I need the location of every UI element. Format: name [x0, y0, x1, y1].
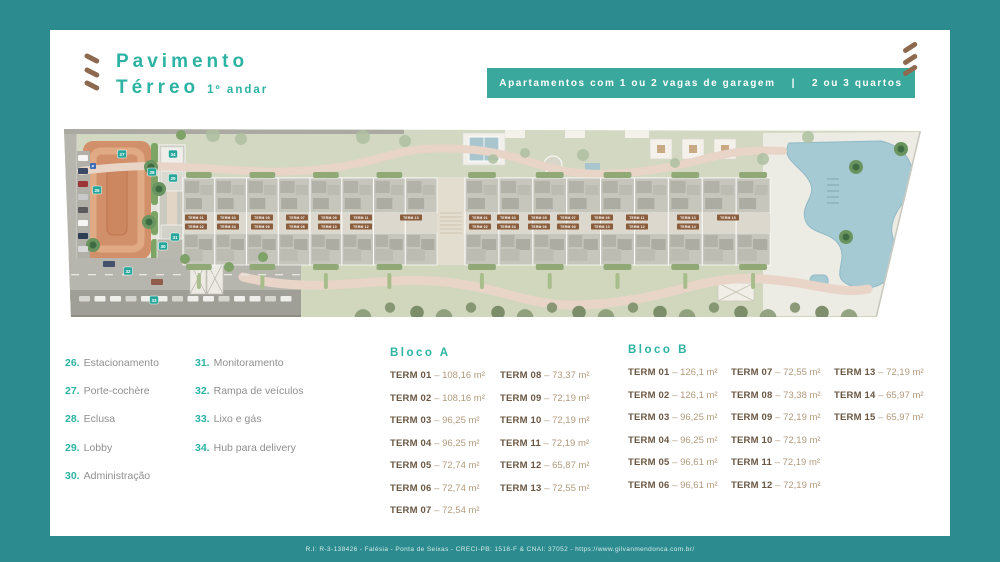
plan-unit-label-text: TERM 09: [594, 216, 610, 220]
features-banner: Apartamentos com 1 ou 2 vagas de garagem…: [487, 68, 915, 98]
legend-item: 30.Administração: [65, 469, 190, 484]
parking-sign-letter: P: [92, 164, 95, 169]
hedge-top: [250, 172, 276, 178]
unit-term: TERM 02: [390, 393, 432, 404]
unit-area: – 72,19 m²: [773, 480, 821, 491]
bloco-column: TERM 01 – 108,16 m²TERM 02 – 108,16 m²TE…: [390, 370, 500, 528]
bloco-b-columns: TERM 01 – 126,1 m²TERM 02 – 126,1 m²TERM…: [628, 367, 937, 502]
unit-area-row: TERM 01 – 126,1 m²: [628, 367, 731, 378]
tree: [709, 302, 719, 312]
unit-detail: [569, 235, 583, 247]
unit-detail: [671, 198, 688, 209]
car-on-road: [151, 279, 163, 285]
tree: [547, 302, 557, 312]
footer-bar: R.I: R-3-138426 - Falésia - Ponta de Sei…: [0, 536, 1000, 562]
car-on-road: [103, 261, 115, 267]
unit-term: TERM 14: [834, 390, 876, 401]
unit-area-row: TERM 12 – 72,19 m²: [731, 480, 834, 491]
hedge-yard: [683, 273, 687, 289]
palm-tree: [843, 234, 850, 241]
unit-detail: [376, 235, 389, 247]
unit-detail: [636, 235, 650, 247]
unit-detail: [501, 249, 520, 261]
legend-item: 33.Lixo e gás: [195, 412, 320, 427]
hedge-top: [186, 172, 212, 178]
legend-item: 27.Porte-cochère: [65, 384, 190, 399]
unit-detail: [344, 235, 357, 247]
lane-dash: [275, 274, 283, 275]
parked-car: [78, 155, 88, 161]
parked-car: [78, 233, 88, 239]
bloco-a-list: Bloco A TERM 01 – 108,16 m²TERM 02 – 108…: [390, 347, 610, 528]
tree: [670, 158, 680, 168]
unit-term: TERM 10: [731, 435, 773, 446]
legend-number: 28.: [65, 413, 80, 425]
palm-tree: [156, 186, 163, 193]
unit-term: TERM 13: [834, 367, 876, 378]
parked-car: [78, 207, 88, 213]
unit-area-row: TERM 03 – 96,25 m²: [628, 412, 731, 423]
plan-unit-label-text: TERM 01: [188, 216, 204, 220]
brand-dashes-left: [84, 56, 100, 97]
hedge-bottom: [186, 264, 212, 270]
unit-area-row: TERM 04 – 96,25 m²: [628, 435, 731, 446]
unit-detail: [551, 185, 564, 195]
plan-unit-label-text: TERM 07: [560, 216, 576, 220]
banner-divider: |: [792, 78, 796, 89]
plan-unit-label-text: TERM 12: [629, 225, 645, 229]
unit-detail: [468, 198, 485, 209]
unit-detail: [518, 185, 531, 195]
unit-detail: [738, 181, 753, 193]
unit-term: TERM 08: [500, 370, 542, 381]
legend-number: 27.: [65, 385, 80, 397]
legend-item: 29.Lobby: [65, 441, 190, 456]
unit-detail: [584, 239, 598, 250]
footer-credits: R.I: R-3-138426 - Falésia - Ponta de Sei…: [305, 546, 694, 553]
unit-term: TERM 04: [628, 435, 670, 446]
unit-term: TERM 13: [500, 483, 542, 494]
unit-area-row: TERM 08 – 73,38 m²: [731, 390, 834, 401]
unit-area-row: TERM 02 – 108,16 m²: [390, 393, 500, 404]
unit-detail: [264, 185, 276, 195]
unit-detail: [550, 239, 564, 250]
tree: [235, 133, 247, 145]
unit-term: TERM 11: [500, 438, 541, 449]
legend-label: Eclusa: [84, 413, 116, 425]
palm-tree: [898, 146, 905, 153]
unit-area: – 96,61 m²: [670, 480, 718, 491]
plan-unit-label-text: TERM 02: [472, 225, 488, 229]
legend-number: 30.: [65, 470, 80, 482]
unit-term: TERM 03: [390, 415, 432, 426]
hedge-yard: [197, 273, 201, 289]
page-title: Pavimento Térreo1º andar: [116, 51, 268, 100]
hedge-bottom: [468, 264, 496, 270]
unit-detail: [704, 181, 719, 193]
tree: [520, 148, 530, 158]
unit-detail: [249, 181, 263, 193]
unit-detail: [185, 181, 199, 193]
unit-detail: [377, 198, 393, 209]
lane-dash: [190, 274, 198, 275]
tree: [436, 309, 453, 326]
plan-badge-number: 31: [172, 235, 178, 240]
title-line2-text: Térreo: [116, 77, 199, 98]
unit-detail: [262, 239, 275, 250]
unit-detail: [232, 185, 244, 195]
unit-detail: [408, 198, 424, 209]
unit-detail: [407, 235, 420, 247]
tree: [598, 309, 615, 326]
unit-detail: [738, 249, 757, 261]
unit-detail: [651, 239, 665, 250]
plan-unit-label-text: TERM 14: [680, 225, 696, 229]
tree: [577, 149, 589, 161]
palm-tree: [90, 242, 97, 249]
unit-detail: [359, 185, 371, 195]
legend-number: 33.: [195, 413, 210, 425]
unit-area: – 72,19 m²: [773, 435, 821, 446]
unit-area: – 73,37 m²: [542, 370, 590, 381]
unit-area-row: TERM 13 – 72,19 m²: [834, 367, 937, 378]
plan-unit-label-text: TERM 11: [353, 216, 369, 220]
garage-car: [219, 296, 230, 302]
unit-term: TERM 08: [731, 390, 773, 401]
hedge-yard: [260, 273, 264, 289]
plan-unit-label-text: TERM 05: [531, 216, 547, 220]
unit-area-row: TERM 01 – 108,16 m²: [390, 370, 500, 381]
unit-area-row: TERM 09 – 72,19 m²: [731, 412, 834, 423]
legend-number: 26.: [65, 357, 80, 369]
unit-detail: [344, 249, 361, 261]
unit-area: – 96,25 m²: [670, 412, 718, 423]
plan-unit-label-text: TERM 10: [594, 225, 610, 229]
parked-car: [78, 246, 88, 252]
dash-icon: [902, 41, 918, 53]
tree: [790, 302, 800, 312]
parked-car: [78, 168, 88, 174]
unit-detail: [685, 239, 699, 250]
bloco-column: TERM 13 – 72,19 m²TERM 14 – 65,97 m²TERM…: [834, 367, 937, 502]
unit-term: TERM 06: [390, 483, 432, 494]
garage-car: [203, 296, 214, 302]
lane-dash: [139, 274, 147, 275]
unit-detail: [423, 185, 435, 195]
unit-detail: [482, 239, 496, 250]
garage-car: [79, 296, 90, 302]
unit-detail: [467, 181, 482, 193]
legend-item: 28.Eclusa: [65, 412, 190, 427]
unit-area-row: TERM 02 – 126,1 m²: [628, 390, 731, 401]
legend-number: 32.: [195, 385, 210, 397]
unit-detail: [516, 239, 530, 250]
unit-detail: [312, 235, 325, 247]
tree: [572, 306, 586, 320]
unit-detail: [636, 249, 655, 261]
unit-detail: [217, 235, 230, 247]
unit-detail: [327, 185, 339, 195]
unit-detail: [280, 181, 294, 193]
unit-detail: [704, 249, 723, 261]
unit-term: TERM 12: [731, 480, 773, 491]
unit-detail: [636, 181, 651, 193]
plan-unit-label-text: TERM 11: [629, 216, 645, 220]
unit-detail: [250, 198, 266, 209]
dash-icon: [84, 66, 100, 77]
unit-detail: [389, 239, 402, 250]
tree: [491, 306, 505, 320]
hedge-bottom: [250, 264, 276, 270]
plan-unit-label-text: TERM 04: [500, 225, 516, 229]
unit-area-row: TERM 11 – 72,19 m²: [731, 457, 834, 468]
unit-term: TERM 15: [834, 412, 876, 423]
unit-area: – 96,25 m²: [432, 415, 480, 426]
unit-area-row: TERM 12 – 65,87 m²: [500, 460, 610, 471]
plan-unit-label-text: TERM 01: [472, 216, 488, 220]
hedge-top: [313, 172, 339, 178]
site-wall: [65, 315, 301, 318]
unit-detail: [344, 181, 358, 193]
unit-detail: [637, 198, 654, 209]
legend-item: 26.Estacionamento: [65, 356, 190, 371]
unit-area: – 108,16 m²: [432, 370, 485, 381]
parked-car: [78, 220, 88, 226]
unit-detail: [618, 239, 632, 250]
unit-detail: [280, 235, 293, 247]
tree: [760, 309, 777, 326]
unit-detail: [467, 235, 481, 247]
garage-car: [126, 296, 137, 302]
unit-term: TERM 05: [390, 460, 432, 471]
unit-detail: [603, 235, 617, 247]
unit-term: TERM 03: [628, 412, 670, 423]
site-plan: TERM 01TERM 02TERM 03TERM 04TERM 05TERM …: [63, 127, 950, 333]
hedge-bottom: [377, 264, 403, 270]
court-island: [107, 165, 127, 235]
hedge-top: [377, 172, 403, 178]
unit-area-row: TERM 06 – 96,61 m²: [628, 480, 731, 491]
plan-unit-label-text: TERM 13: [403, 216, 419, 220]
parked-car: [78, 181, 88, 187]
garage-car: [250, 296, 261, 302]
plan-badge-number: 27: [119, 152, 125, 157]
garage-car: [281, 296, 292, 302]
plan-unit-label-text: TERM 10: [321, 225, 337, 229]
unit-area-row: TERM 05 – 72,74 m²: [390, 460, 500, 471]
parked-car: [78, 194, 88, 200]
plan-unit-label-text: TERM 03: [500, 216, 516, 220]
hedge-top: [536, 172, 564, 178]
unit-detail: [200, 185, 212, 195]
lane-dash: [156, 274, 164, 275]
unit-detail: [231, 239, 244, 250]
unit-detail: [467, 249, 486, 261]
tree: [488, 154, 498, 164]
plan-badge-number: 30: [160, 244, 166, 249]
unit-detail: [719, 239, 733, 250]
unit-term: TERM 07: [731, 367, 773, 378]
plan-badge-number: 33: [151, 298, 157, 303]
tree: [802, 131, 814, 143]
tree: [653, 306, 667, 320]
unit-detail: [407, 249, 424, 261]
unit-detail: [670, 235, 684, 247]
unit-detail: [670, 181, 685, 193]
unit-area-row: TERM 08 – 73,37 m²: [500, 370, 610, 381]
unit-area-row: TERM 04 – 96,25 m²: [390, 438, 500, 449]
plan-badge-number: 29: [170, 176, 176, 181]
tree: [628, 302, 638, 312]
hedge-yard: [616, 273, 620, 289]
unit-detail: [185, 235, 198, 247]
unit-area: – 72,74 m²: [432, 483, 480, 494]
unit-area-row: TERM 10 – 72,19 m²: [731, 435, 834, 446]
unit-term: TERM 06: [628, 480, 670, 491]
unit-area: – 126,1 m²: [670, 367, 718, 378]
sun-court: [718, 283, 754, 301]
unit-detail: [753, 239, 767, 250]
legend-label: Monitoramento: [214, 357, 284, 369]
unit-detail: [536, 198, 553, 209]
hedge-top: [604, 172, 632, 178]
unit-term: TERM 02: [628, 390, 670, 401]
title-line2: Térreo1º andar: [116, 77, 268, 100]
unit-detail: [186, 198, 202, 209]
legend-number: 29.: [65, 442, 80, 454]
tree: [734, 306, 748, 320]
unit-detail: [217, 249, 234, 261]
hedge-bottom: [739, 264, 767, 270]
hedge-yard: [480, 273, 484, 289]
lane-dash: [207, 274, 215, 275]
banner-left-text: Apartamentos com 1 ou 2 vagas de garagem: [499, 78, 775, 89]
lane-dash: [292, 274, 300, 275]
unit-detail: [217, 181, 231, 193]
plan-unit-label-text: TERM 12: [353, 225, 369, 229]
unit-detail: [721, 185, 734, 195]
hedge-top: [671, 172, 699, 178]
lane-dash: [88, 274, 96, 275]
unit-detail: [249, 235, 262, 247]
unit-term: TERM 07: [390, 505, 432, 516]
unit-area: – 126,1 m²: [670, 390, 718, 401]
dash-icon: [902, 64, 918, 76]
legend-label: Lixo e gás: [214, 413, 262, 425]
plan-unit-label-text: TERM 02: [188, 225, 204, 229]
tree: [841, 309, 858, 326]
unit-area: – 72,19 m²: [542, 415, 590, 426]
tree: [356, 130, 370, 144]
hedge-bottom: [313, 264, 339, 270]
unit-area: – 108,16 m²: [432, 393, 485, 404]
unit-area-row: TERM 06 – 72,74 m²: [390, 483, 500, 494]
unit-area: – 72,54 m²: [432, 505, 480, 516]
tree: [757, 153, 769, 165]
unit-detail: [704, 235, 718, 247]
unit-area-row: TERM 11 – 72,19 m²: [500, 438, 610, 449]
hedge-yard: [324, 273, 328, 289]
unit-area: – 96,61 m²: [670, 457, 718, 468]
unit-area: – 65,87 m²: [542, 460, 590, 471]
tree: [206, 128, 220, 142]
unit-detail: [604, 198, 621, 209]
bush: [176, 130, 186, 140]
tree: [385, 302, 395, 312]
unit-detail: [313, 198, 329, 209]
unit-area-row: TERM 05 – 96,61 m²: [628, 457, 731, 468]
unit-area: – 73,38 m²: [773, 390, 821, 401]
unit-detail: [280, 249, 297, 261]
unit-term: TERM 09: [500, 393, 542, 404]
bush: [224, 262, 234, 272]
dash-icon: [84, 80, 100, 91]
unit-area: – 72,19 m²: [773, 412, 821, 423]
unit-detail: [619, 185, 632, 195]
unit-area: – 72,74 m²: [432, 460, 480, 471]
lane-dash: [173, 274, 181, 275]
unit-detail: [312, 249, 329, 261]
unit-term: TERM 09: [731, 412, 773, 423]
plan-badge-number: 32: [125, 269, 131, 274]
unit-detail: [421, 239, 434, 250]
plan-unit-label-text: TERM 13: [680, 216, 696, 220]
unit-detail: [326, 239, 339, 250]
lane-dash: [241, 274, 249, 275]
title-line1: Pavimento: [116, 51, 268, 74]
legend-label: Rampa de veículos: [214, 385, 304, 397]
legend-number: 34.: [195, 442, 210, 454]
tree: [355, 309, 372, 326]
brand-dashes-right: [902, 45, 918, 80]
legend-item: 32.Rampa de veículos: [195, 384, 320, 399]
unit-detail: [755, 185, 768, 195]
tree: [410, 306, 424, 320]
legend-column-2: 31.Monitoramento32.Rampa de veículos33.L…: [195, 356, 320, 469]
unit-area: – 96,25 m²: [670, 435, 718, 446]
legend-column-1: 26.Estacionamento27.Porte-cochère28.Eclu…: [65, 356, 190, 497]
bloco-b-title: Bloco B: [628, 344, 937, 356]
unit-detail: [739, 198, 756, 209]
bloco-b-list: Bloco B TERM 01 – 126,1 m²TERM 02 – 126,…: [628, 344, 937, 502]
plan-badge-number: 26: [94, 188, 100, 193]
unit-detail: [585, 185, 598, 195]
plan-badge-number: 28: [149, 170, 155, 175]
legend-item: 31.Monitoramento: [195, 356, 320, 371]
water-feature: [585, 163, 600, 170]
legend-item: 34.Hub para delivery: [195, 441, 320, 456]
unit-detail: [281, 198, 297, 209]
slide-background: { "header": { "title_line1": "Pavimento"…: [0, 0, 1000, 562]
unit-detail: [391, 185, 403, 195]
unit-detail: [535, 235, 549, 247]
unit-detail: [199, 239, 212, 250]
site-plan-drawing: TERM 01TERM 02TERM 03TERM 04TERM 05TERM …: [63, 127, 950, 333]
garage-car: [110, 296, 121, 302]
unit-area-row: TERM 07 – 72,54 m²: [390, 505, 500, 516]
unit-detail: [705, 198, 722, 209]
unit-detail: [484, 185, 497, 195]
unit-detail: [603, 181, 618, 193]
garage-car: [265, 296, 276, 302]
legend-label: Hub para delivery: [214, 442, 296, 454]
tree: [466, 302, 476, 312]
unit-area-row: TERM 10 – 72,19 m²: [500, 415, 610, 426]
unit-term: TERM 11: [731, 457, 772, 468]
garage-car: [234, 296, 245, 302]
unit-detail: [501, 235, 515, 247]
unit-term: TERM 01: [390, 370, 432, 381]
